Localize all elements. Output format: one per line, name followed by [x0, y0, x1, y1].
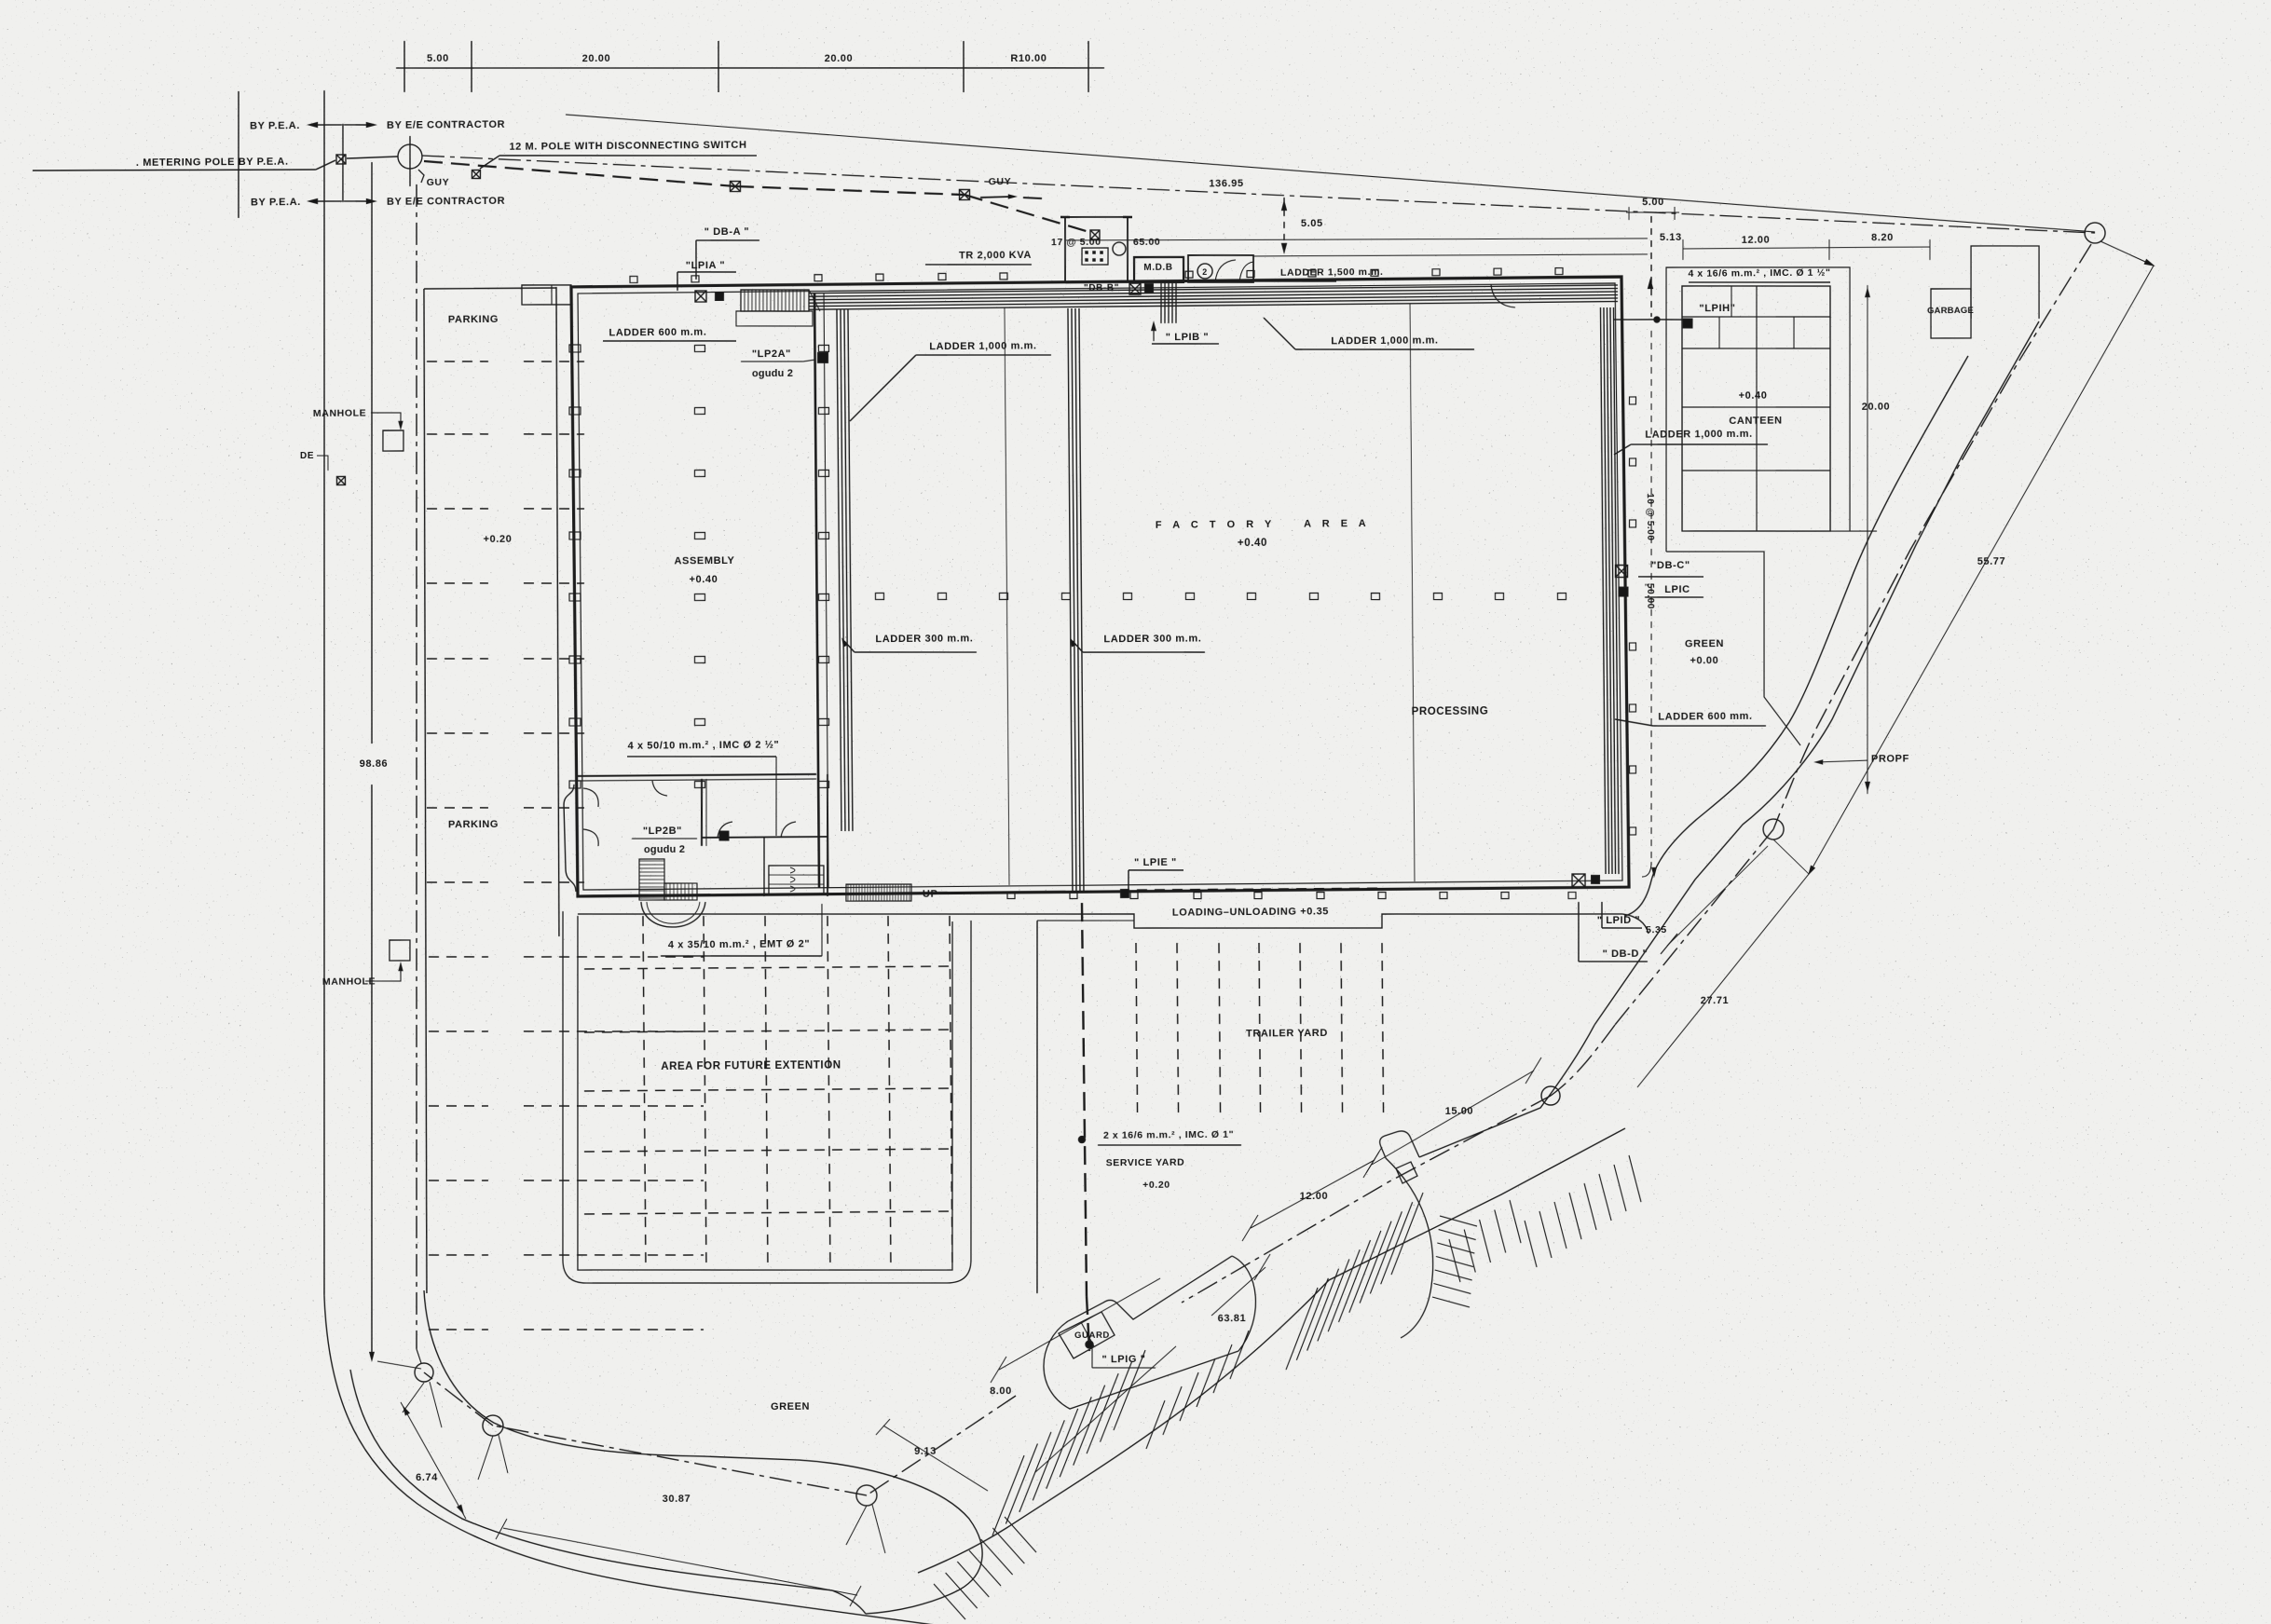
- svg-text:MANHOLE: MANHOLE: [313, 408, 366, 419]
- svg-text:"DB-C": "DB-C": [1651, 560, 1690, 571]
- svg-text:5.13: 5.13: [1660, 232, 1682, 243]
- svg-text:LADDER 1,000 m.m.: LADDER 1,000 m.m.: [929, 341, 1036, 353]
- svg-text:12 M. POLE WITH DISCONNECTIN: 12 M. POLE WITH DISCONNECTING SWITCH: [509, 140, 746, 153]
- svg-text:5.05: 5.05: [1301, 218, 1323, 229]
- svg-text:AREA FOR FUTURE EXTENTION: AREA FOR FUTURE EXTENTION: [661, 1059, 841, 1072]
- svg-text:TRAILER YARD: TRAILER YARD: [1246, 1028, 1328, 1040]
- svg-text:DE: DE: [300, 451, 314, 461]
- svg-text:5.00: 5.00: [427, 53, 449, 64]
- svg-text:M.D.B: M.D.B: [1143, 263, 1172, 273]
- svg-text:+0.00: +0.00: [1690, 655, 1718, 666]
- svg-text:+0.40: +0.40: [689, 574, 718, 585]
- svg-text:"LPIA ": "LPIA ": [686, 260, 725, 271]
- svg-text:LADDER 600 m.m.: LADDER 600 m.m.: [609, 327, 706, 339]
- svg-text:15.00: 15.00: [1445, 1106, 1474, 1117]
- svg-text:BY E/E CONTRACTOR: BY E/E CONTRACTOR: [387, 119, 505, 131]
- svg-text:. METERING POLE BY P.E.A.: . METERING POLE BY P.E.A.: [136, 157, 289, 169]
- svg-text:12.00: 12.00: [1742, 235, 1771, 246]
- svg-text:8.20: 8.20: [1871, 232, 1894, 243]
- svg-text:PARKING: PARKING: [448, 819, 499, 830]
- svg-text:GREEN: GREEN: [771, 1401, 810, 1412]
- svg-text:UP: UP: [923, 889, 938, 900]
- svg-text:PROCESSING: PROCESSING: [1412, 706, 1489, 718]
- svg-text:4 x 16/6 m.m.² , IMC. Ø 1 ½": 4 x 16/6 m.m.² , IMC. Ø 1 ½": [1688, 266, 1830, 279]
- svg-text:GREEN: GREEN: [1685, 638, 1724, 649]
- svg-text:MANHOLE: MANHOLE: [322, 976, 376, 988]
- svg-text:GARBAGE: GARBAGE: [1927, 306, 1974, 316]
- svg-text:" LPIG ": " LPIG ": [1101, 1354, 1145, 1365]
- svg-text:" LPIE ": " LPIE ": [1134, 857, 1177, 868]
- svg-text:ogudu 2: ogudu 2: [752, 368, 793, 379]
- svg-text:27.71: 27.71: [1701, 995, 1730, 1006]
- svg-text:6.74: 6.74: [416, 1472, 438, 1483]
- svg-text:136.95: 136.95: [1209, 178, 1243, 189]
- svg-text:10 @ 5.00: 10 @ 5.00: [1645, 493, 1655, 540]
- svg-text:SERVICE YARD: SERVICE YARD: [1106, 1157, 1185, 1169]
- svg-text:LADDER 300 m.m.: LADDER 300 m.m.: [875, 634, 973, 646]
- svg-text:2: 2: [1202, 267, 1208, 277]
- svg-text:F A C T O R Y A R E A: F A C T O R Y A R E A: [1156, 518, 1370, 531]
- svg-text:4 x 35/10 m.m.² , EMT Ø 2": 4 x 35/10 m.m.² , EMT Ø 2": [668, 938, 810, 950]
- svg-text:20.00: 20.00: [825, 53, 854, 64]
- svg-text:4 x 50/10 m.m.² , IMC Ø 2 ½": 4 x 50/10 m.m.² , IMC Ø 2 ½": [628, 739, 780, 751]
- svg-text:LADDER 1,000 m.m.: LADDER 1,000 m.m.: [1645, 429, 1752, 441]
- svg-text:GUY: GUY: [427, 177, 450, 188]
- svg-text:8.00: 8.00: [990, 1385, 1012, 1397]
- svg-text:BY P.E.A.: BY P.E.A.: [250, 120, 300, 131]
- svg-text:LPIC: LPIC: [1664, 584, 1690, 595]
- svg-text:CANTEEN: CANTEEN: [1729, 416, 1782, 427]
- svg-text:"LP2B": "LP2B": [643, 826, 682, 837]
- svg-text:20.00: 20.00: [1862, 402, 1891, 413]
- svg-text:" LPID ": " LPID ": [1597, 915, 1640, 926]
- svg-text:5.00: 5.00: [1642, 197, 1664, 208]
- svg-text:GUY: GUY: [989, 176, 1012, 187]
- svg-text:LADDER 600 mm.: LADDER 600 mm.: [1658, 711, 1752, 723]
- svg-text:BY E/E CONTRACTOR: BY E/E CONTRACTOR: [387, 196, 505, 208]
- svg-text:50.00: 50.00: [1645, 583, 1655, 609]
- svg-text:20.00: 20.00: [582, 53, 611, 64]
- svg-text:GUARD: GUARD: [1074, 1331, 1110, 1341]
- svg-text:LADDER 300 m.m.: LADDER 300 m.m.: [1103, 634, 1201, 646]
- svg-text:63.81: 63.81: [1218, 1313, 1247, 1324]
- svg-text:+0.20: +0.20: [484, 534, 513, 545]
- svg-text:12.00: 12.00: [1300, 1191, 1329, 1202]
- svg-text:+0.20: +0.20: [1142, 1180, 1170, 1191]
- svg-text:+0.40: +0.40: [1739, 390, 1768, 402]
- svg-text:LADDER 1,500 m.m.: LADDER 1,500 m.m.: [1280, 266, 1384, 279]
- svg-text:TR 2,000 KVA: TR 2,000 KVA: [959, 250, 1032, 262]
- svg-text:ogudu 2: ogudu 2: [644, 844, 685, 855]
- svg-text:ASSEMBLY: ASSEMBLY: [674, 555, 734, 567]
- svg-text:LADDER 1,000 m.m.: LADDER 1,000 m.m.: [1331, 335, 1438, 348]
- svg-text:98.86: 98.86: [360, 758, 389, 770]
- svg-text:PROPF: PROPF: [1871, 754, 1909, 765]
- svg-text:"LPIH": "LPIH": [1699, 303, 1735, 314]
- svg-text:R10.00: R10.00: [1010, 53, 1047, 64]
- svg-text:LOADING–UNLOADING +0.35: LOADING–UNLOADING +0.35: [1172, 906, 1329, 918]
- svg-text:17 @ 5.00: 17 @ 5.00: [1051, 237, 1101, 248]
- svg-text:+0.40: +0.40: [1238, 538, 1267, 549]
- svg-text:"DB-B": "DB-B": [1084, 283, 1119, 293]
- svg-text:BY P.E.A.: BY P.E.A.: [251, 197, 301, 208]
- svg-text:55.77: 55.77: [1977, 556, 2006, 567]
- svg-text:"LP2A": "LP2A": [752, 348, 791, 360]
- svg-text:30.87: 30.87: [663, 1494, 691, 1505]
- svg-text:" DB-A ": " DB-A ": [705, 226, 750, 238]
- svg-text:2 x 16/6 m.m.² , IMC. Ø 1": 2 x 16/6 m.m.² , IMC. Ø 1": [1103, 1128, 1234, 1140]
- svg-text:PARKING: PARKING: [448, 314, 499, 325]
- svg-text:65.00: 65.00: [1133, 237, 1160, 248]
- svg-text:" LPIB ": " LPIB ": [1166, 332, 1209, 343]
